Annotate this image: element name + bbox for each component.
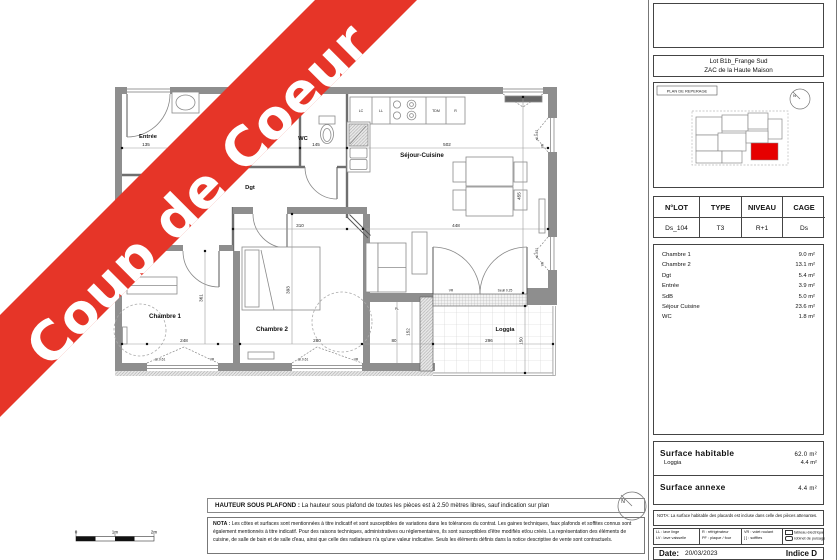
mini-north-compass-icon: N bbox=[790, 89, 810, 109]
area-value: 9.0 m² bbox=[799, 252, 815, 262]
area-label: WC bbox=[662, 314, 672, 324]
legend-cell: LL : lave linge LV : lave vaisselle bbox=[654, 529, 700, 544]
sidebar-nota-text: NOTA: La surface habitable des placards … bbox=[657, 513, 817, 518]
dim-label: 145 bbox=[312, 142, 320, 147]
date-box: Date: 20/03/2023 Indice D bbox=[653, 547, 824, 560]
area-value: 13.1 m² bbox=[795, 262, 815, 272]
room-label-loggia: Loggia bbox=[496, 327, 516, 333]
indice-label: Indice D bbox=[786, 549, 817, 558]
vr-label: VR bbox=[354, 358, 359, 362]
dim-label: 310 bbox=[296, 223, 304, 228]
sofa bbox=[366, 232, 427, 292]
allege-label: all.0.61 bbox=[535, 130, 539, 141]
area-row: Chambre 1 9.0 m² bbox=[662, 252, 815, 262]
loggia-row: Loggia 4.4 m² bbox=[654, 460, 823, 466]
sheet-divider-right bbox=[836, 0, 837, 560]
dim-label: 296 bbox=[485, 338, 493, 343]
location-plan: PLAN DE REPERAGE N bbox=[654, 83, 823, 187]
area-row: SdB 5.0 m² bbox=[662, 294, 815, 304]
kitchen-label-lc: LC bbox=[359, 109, 364, 113]
kitchen-units bbox=[347, 97, 465, 172]
legend-entry: tableau électrique abonné bbox=[794, 531, 825, 535]
highlighted-lot bbox=[751, 143, 778, 160]
lot-cage: Ds bbox=[783, 218, 825, 238]
loggia-label: Loggia bbox=[664, 460, 681, 466]
lot-table-header: CAGE bbox=[783, 197, 825, 218]
seuil-label: Seuil 0.25 bbox=[498, 289, 513, 293]
mini-north-letter: N bbox=[793, 93, 796, 98]
room-label-chambre1: Chambre 1 bbox=[149, 313, 182, 320]
area-label: Dgt bbox=[662, 273, 671, 283]
legend-entry: PF : plaque / four bbox=[702, 536, 739, 542]
bed-chambre2 bbox=[242, 247, 320, 359]
room-label-dgt: Dgt bbox=[245, 185, 255, 191]
room-label-sejour: Séjour-Cuisine bbox=[400, 152, 444, 159]
vr-label: VR bbox=[210, 358, 215, 362]
ceiling-height-text: La hauteur sous plafond de toutes les pi… bbox=[302, 503, 550, 509]
surface-annexe-row: Surface annexe 4.4 m² bbox=[654, 482, 823, 492]
logo-box bbox=[653, 3, 824, 48]
legend-entry: [ ] : soffites bbox=[744, 536, 780, 542]
sheet-divider-left bbox=[648, 0, 649, 560]
area-label: SdB bbox=[662, 294, 673, 304]
bathroom-sink bbox=[172, 92, 199, 113]
area-value: 3.9 m² bbox=[799, 283, 815, 293]
surface-habitable-value: 62.0 m² bbox=[795, 452, 817, 458]
area-row: Dgt 5.4 m² bbox=[662, 273, 815, 283]
area-row: WC 1.8 m² bbox=[662, 314, 815, 324]
area-value: 5.0 m² bbox=[799, 294, 815, 304]
lot-info-table: N°LOT TYPE NIVEAU CAGE Ds_104 T3 R+1 Ds bbox=[653, 196, 824, 238]
legend-entry: robinet de puisage bbox=[794, 537, 825, 541]
scale-bar: 0 1m 2m bbox=[75, 530, 158, 542]
radiator-right bbox=[539, 199, 545, 233]
area-label: Chambre 2 bbox=[662, 262, 691, 272]
legend-entry-row: robinet de puisage bbox=[785, 536, 823, 542]
surface-summary-box: Surface habitable 62.0 m² Loggia 4.4 m² … bbox=[653, 441, 824, 505]
dim-label: 280 bbox=[313, 338, 321, 343]
kitchen-label-ll: LL bbox=[379, 109, 383, 113]
surface-annexe-label: Surface annexe bbox=[660, 482, 726, 492]
room-label-wc: WC bbox=[298, 136, 308, 142]
dim-label: 150 bbox=[519, 337, 524, 345]
surface-annexe-value: 4.4 m² bbox=[798, 486, 817, 492]
kitchen-label-r: R bbox=[454, 109, 457, 113]
dim-label: 135 bbox=[142, 142, 150, 147]
vr-label: VR bbox=[541, 261, 545, 266]
loggia-value: 4.4 m² bbox=[801, 460, 817, 466]
date-value: 20/03/2023 bbox=[685, 550, 786, 557]
dining-set bbox=[453, 157, 527, 216]
area-label: Entrée bbox=[662, 283, 679, 293]
project-line2: ZAC de la Haute Maison bbox=[654, 66, 823, 75]
room-label-pl: PL bbox=[395, 307, 399, 311]
vr-label: VR bbox=[541, 143, 545, 148]
surface-habitable-label: Surface habitable bbox=[660, 448, 734, 458]
ceiling-height-label: HAUTEUR SOUS PLAFOND : bbox=[215, 502, 300, 509]
kitchen-label-tdm: TDM bbox=[432, 109, 440, 113]
project-line1: Lot B1b_Frange Sud bbox=[654, 57, 823, 66]
dim-label: 361 bbox=[199, 294, 204, 302]
project-title-box: Lot B1b_Frange Sud ZAC de la Haute Maiso… bbox=[653, 55, 824, 77]
area-row: Chambre 2 13.1 m² bbox=[662, 262, 815, 272]
nota-text: Les côtes et surfaces sont mentionnées à… bbox=[213, 521, 631, 543]
dim-label: 248 bbox=[180, 338, 188, 343]
location-plan-box: PLAN DE REPERAGE N bbox=[653, 82, 824, 188]
lot-table-header: N°LOT bbox=[654, 197, 700, 218]
sidebar-nota-box: NOTA: La surface habitable des placards … bbox=[653, 510, 824, 526]
dim-label: 455 bbox=[517, 192, 522, 200]
surface-habitable-row: Surface habitable 62.0 m² bbox=[654, 448, 823, 458]
surface-divider bbox=[654, 475, 823, 476]
legend-entry: LV : lave vaisselle bbox=[656, 536, 697, 542]
dim-label: 152 bbox=[406, 328, 411, 336]
area-value: 23.6 m² bbox=[795, 304, 815, 314]
lot-level: R+1 bbox=[742, 218, 783, 238]
radiator-chambre1 bbox=[123, 327, 128, 344]
dim-label: 448 bbox=[452, 223, 460, 228]
dim-label: 80 bbox=[391, 338, 397, 343]
allege-label: all.0.61 bbox=[155, 358, 166, 362]
area-value: 5.4 m² bbox=[799, 273, 815, 283]
lot-table-header: NIVEAU bbox=[742, 197, 783, 218]
area-row: Séjour Cuisine 23.6 m² bbox=[662, 304, 815, 314]
water-tap-icon bbox=[785, 536, 793, 541]
dim-label: 502 bbox=[443, 142, 451, 147]
location-plan-title: PLAN DE REPERAGE bbox=[667, 89, 708, 94]
lot-table-header: TYPE bbox=[700, 197, 742, 218]
electric-panel-icon bbox=[785, 530, 793, 535]
area-row: Entrée 3.9 m² bbox=[662, 283, 815, 293]
nota-note: NOTA : Les côtes et surfaces sont mentio… bbox=[207, 517, 645, 554]
area-value: 1.8 m² bbox=[799, 314, 815, 324]
dim-label: 393 bbox=[286, 286, 291, 294]
legend-cell: VR : volet roulant [ ] : soffites bbox=[742, 529, 783, 544]
nota-label: NOTA : bbox=[213, 521, 230, 527]
date-label: Date: bbox=[659, 549, 679, 558]
vr-label: VR bbox=[449, 289, 454, 293]
allege-label: all.0.61 bbox=[535, 248, 539, 259]
ceiling-height-note: HAUTEUR SOUS PLAFOND : La hauteur sous p… bbox=[207, 498, 645, 513]
loggia-floor bbox=[433, 306, 556, 376]
legend-cell: tableau électrique abonné robinet de pui… bbox=[783, 529, 825, 544]
legend-box: LL : lave linge LV : lave vaisselle R : … bbox=[653, 528, 824, 545]
room-label-chambre2: Chambre 2 bbox=[256, 326, 289, 333]
room-label-entree: Entrée bbox=[139, 134, 158, 140]
lot-type: T3 bbox=[700, 218, 742, 238]
lot-number: Ds_104 bbox=[654, 218, 700, 238]
toilet bbox=[319, 116, 335, 144]
area-label: Séjour Cuisine bbox=[662, 304, 700, 314]
allege-label: all.0.61 bbox=[298, 358, 309, 362]
area-label: Chambre 1 bbox=[662, 252, 691, 262]
legend-cell: R : réfrigérateur PF : plaque / four bbox=[700, 529, 742, 544]
room-areas-box: Chambre 1 9.0 m² Chambre 2 13.1 m² Dgt 5… bbox=[653, 244, 824, 435]
